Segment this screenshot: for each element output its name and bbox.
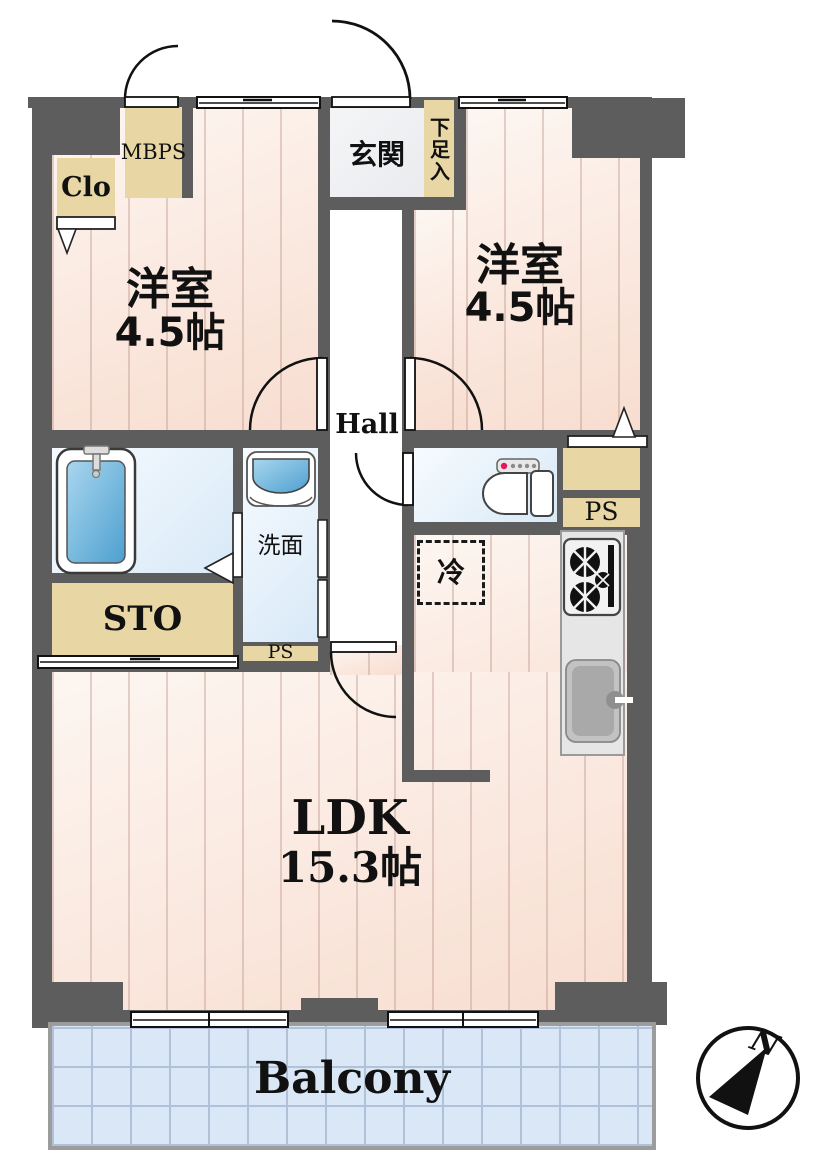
refrigerator-label: 冷 bbox=[417, 540, 485, 602]
wall-entrance-bottom bbox=[318, 197, 466, 210]
closet-label: Clo bbox=[57, 168, 115, 206]
right-closet-box bbox=[563, 448, 640, 490]
wall-bedroom-right-bottom bbox=[402, 430, 652, 448]
toilet-floor bbox=[414, 445, 557, 522]
pipe-space-label: PS bbox=[563, 496, 640, 527]
compass-north-label: N bbox=[745, 1022, 785, 1065]
wall-entrance-right bbox=[454, 97, 466, 210]
ldk-size: 15.3帖 bbox=[150, 841, 550, 887]
balcony-label: Balcony bbox=[48, 1052, 656, 1104]
wall-bottomright-block bbox=[555, 982, 667, 1025]
floor-plan: 洋室 4.5帖 洋室 4.5帖 LDK 15.3帖 Hall 玄関 下足入 洗面… bbox=[0, 0, 836, 1160]
shoe-box-label: 下足入 bbox=[424, 104, 454, 196]
storage-room-label: STO bbox=[52, 599, 233, 639]
wall-top bbox=[28, 97, 652, 108]
kitchen-counter bbox=[560, 530, 625, 756]
pipe-space-2-label: PS bbox=[243, 641, 318, 663]
bedroom-right-size: 4.5帖 bbox=[420, 281, 620, 327]
bedroom-left-size: 4.5帖 bbox=[70, 306, 270, 352]
bathroom-floor bbox=[52, 448, 233, 573]
entrance-label: 玄関 bbox=[330, 136, 424, 170]
compass-icon: N bbox=[698, 1022, 798, 1128]
meter-box-label: MBPS bbox=[121, 138, 186, 166]
wall-hall-right bbox=[402, 197, 414, 772]
ldk-floor-patch bbox=[330, 645, 402, 675]
wall-right-lower bbox=[627, 530, 652, 982]
wall-left bbox=[32, 100, 52, 1012]
wall-bedroom-left-bottom bbox=[32, 430, 330, 448]
hall-label: Hall bbox=[328, 408, 406, 440]
wall-bath-sto bbox=[52, 573, 233, 583]
wall-kitchen-stub bbox=[402, 770, 490, 782]
washroom-label: 洗面 bbox=[243, 528, 318, 558]
door-entrance bbox=[332, 21, 410, 107]
wall-below-sto bbox=[32, 655, 240, 672]
wall-hall-left bbox=[318, 97, 330, 657]
wall-topright-block bbox=[572, 98, 685, 158]
wall-bath-washroom bbox=[233, 448, 243, 657]
wall-right-upper bbox=[640, 98, 652, 530]
